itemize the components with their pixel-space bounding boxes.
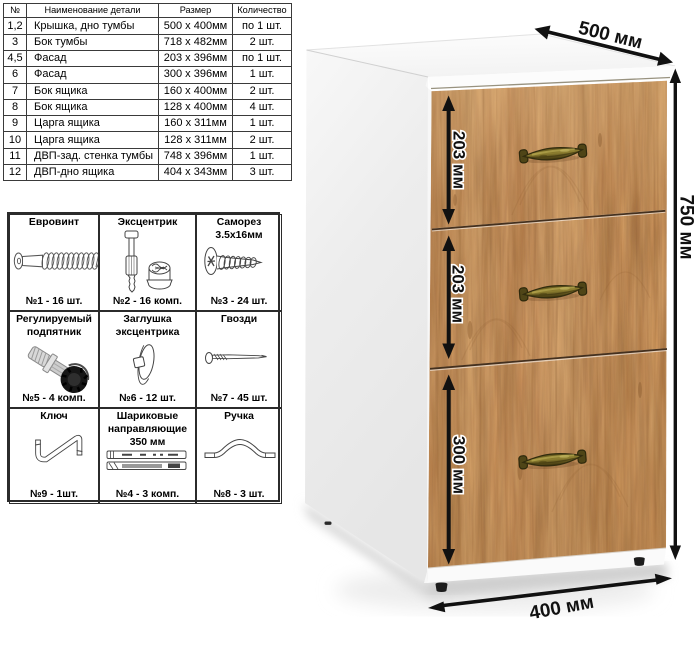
svg-text:203 мм: 203 мм xyxy=(449,265,468,323)
svg-text:750 мм: 750 мм xyxy=(676,194,697,259)
svg-text:203 мм: 203 мм xyxy=(450,131,469,189)
svg-text:300 мм: 300 мм xyxy=(450,436,469,494)
